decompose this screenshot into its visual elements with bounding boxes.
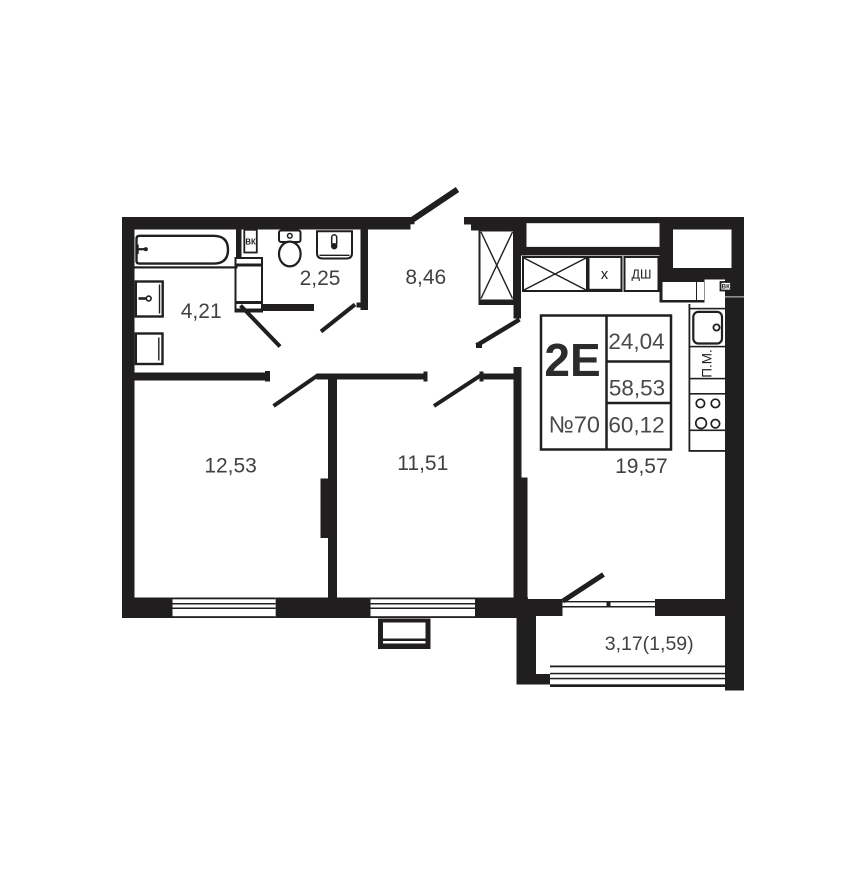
svg-text:№70: №70 xyxy=(549,412,600,438)
svg-text:58,53: 58,53 xyxy=(609,376,665,401)
svg-text:24,04: 24,04 xyxy=(608,329,664,354)
svg-text:11,51: 11,51 xyxy=(397,452,448,475)
svg-text:2,25: 2,25 xyxy=(300,267,341,290)
svg-text:12,53: 12,53 xyxy=(204,454,257,477)
svg-text:ДШ: ДШ xyxy=(632,268,652,282)
svg-text:8,46: 8,46 xyxy=(405,266,446,289)
svg-text:60,12: 60,12 xyxy=(608,413,664,438)
svg-text:4,21: 4,21 xyxy=(181,300,222,323)
svg-text:x: x xyxy=(601,266,609,283)
svg-text:19,57: 19,57 xyxy=(615,455,668,478)
svg-text:ВК: ВК xyxy=(722,283,730,290)
svg-text:ВК: ВК xyxy=(245,237,256,246)
svg-text:П.М.: П.М. xyxy=(700,349,715,377)
svg-text:3,17(1,59): 3,17(1,59) xyxy=(605,633,694,655)
svg-text:2Е: 2Е xyxy=(544,334,600,386)
